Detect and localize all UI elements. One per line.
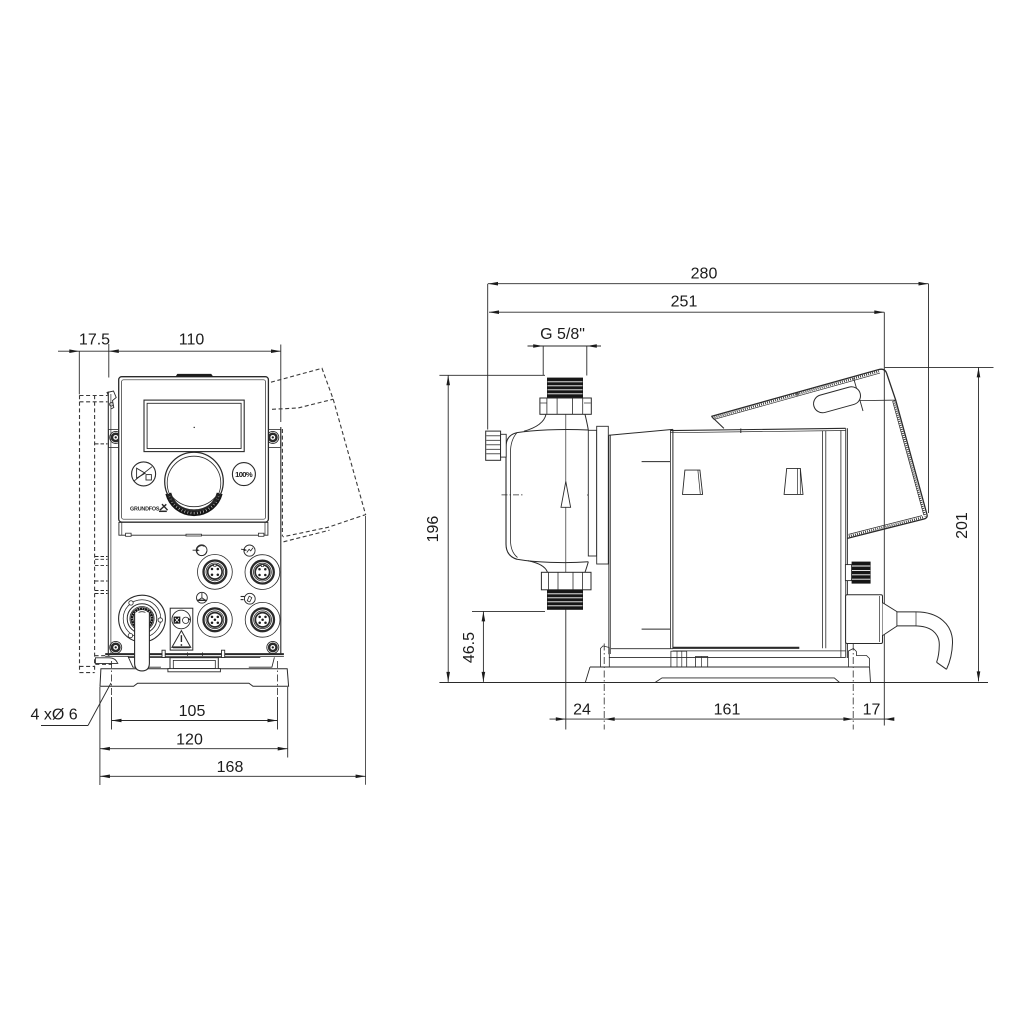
svg-text:46.5: 46.5 (461, 632, 478, 663)
svg-text:120: 120 (176, 731, 203, 748)
svg-text:4 xØ 6: 4 xØ 6 (31, 707, 78, 724)
svg-text:110: 110 (179, 332, 205, 349)
svg-text:100%: 100% (235, 470, 253, 479)
svg-text:17.5: 17.5 (79, 332, 110, 349)
svg-text:G 5/8": G 5/8" (540, 326, 585, 343)
svg-text:17: 17 (863, 702, 881, 719)
svg-text:24: 24 (573, 702, 591, 719)
svg-text:168: 168 (217, 759, 244, 776)
svg-text:161: 161 (714, 702, 741, 719)
svg-text:201: 201 (954, 512, 971, 539)
svg-text:GRUNDFOS: GRUNDFOS (130, 507, 160, 513)
svg-text:280: 280 (691, 265, 718, 282)
svg-text:251: 251 (671, 294, 698, 311)
svg-text:105: 105 (179, 703, 206, 720)
svg-text:196: 196 (425, 516, 442, 543)
